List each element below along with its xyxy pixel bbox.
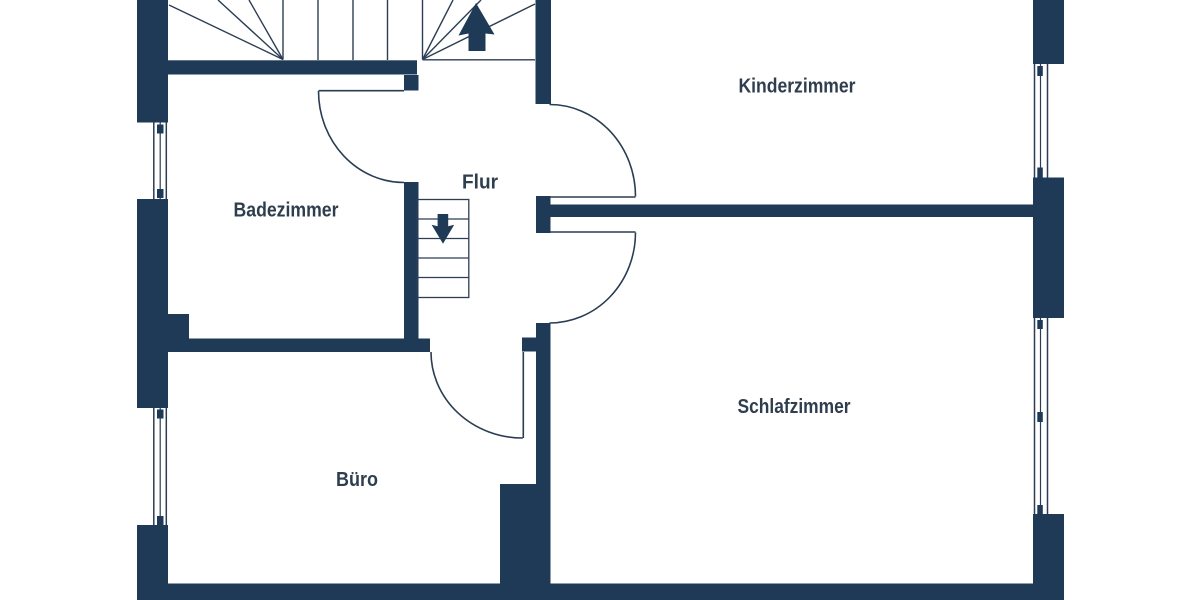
svg-text:Schlafzimmer: Schlafzimmer (738, 395, 851, 418)
svg-text:Badezimmer: Badezimmer (234, 199, 339, 222)
svg-text:Büro: Büro (336, 468, 378, 491)
svg-text:Kinderzimmer: Kinderzimmer (739, 75, 856, 98)
svg-text:Flur: Flur (462, 171, 498, 194)
